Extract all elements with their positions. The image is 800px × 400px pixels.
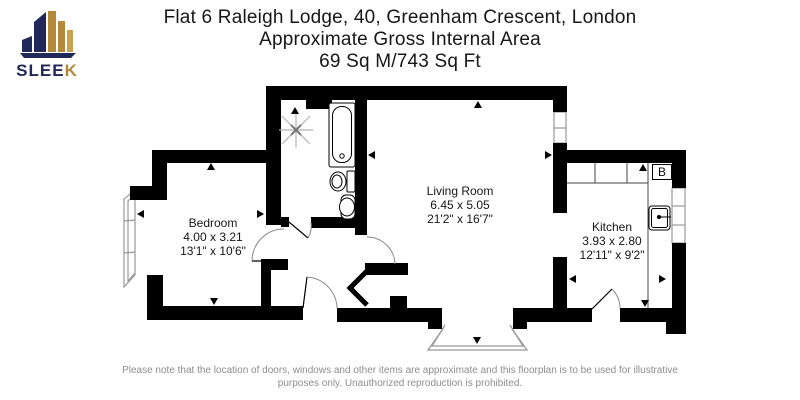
disclaimer-line2: purposes only. Unauthorized reproduction…	[0, 377, 800, 390]
room-imperial-dims: 21'2" x 16'7"	[427, 212, 494, 226]
room-metric-dims: 6.45 x 5.05	[427, 198, 494, 212]
measure-arrow	[545, 151, 552, 159]
measure-arrow	[257, 210, 264, 218]
toilet-icon	[330, 171, 355, 192]
room-name: Bedroom	[180, 216, 246, 230]
walls	[130, 86, 686, 334]
measure-arrow	[474, 101, 482, 108]
floorplan-page: SLEEK Flat 6 Raleigh Lodge, 40, Greenham…	[0, 0, 800, 400]
room-name: Living Room	[427, 184, 494, 198]
measure-arrow	[639, 164, 647, 171]
measure-arrow	[137, 210, 144, 218]
boiler-label: B	[658, 165, 666, 179]
bathtub-icon	[329, 103, 355, 167]
room-imperial-dims: 13'1" x 10'6"	[180, 244, 246, 258]
living-room-label: Living Room 6.45 x 5.05 21'2" x 16'7"	[427, 184, 494, 226]
living-room-door	[367, 237, 395, 264]
measure-arrow	[569, 275, 576, 283]
disclaimer-line1: Please note that the location of doors, …	[0, 364, 800, 377]
bedroom-door	[252, 229, 284, 261]
measure-arrow	[473, 337, 481, 344]
floorplan-drawing	[0, 0, 800, 400]
room-metric-dims: 3.93 x 2.80	[580, 234, 645, 248]
kitchen-door	[592, 289, 620, 309]
cupboard-folding-door	[350, 271, 367, 305]
room-name: Kitchen	[580, 220, 645, 234]
bedroom-label: Bedroom 4.00 x 3.21 13'1" x 10'6"	[180, 216, 246, 258]
kitchen-east-window	[672, 188, 685, 243]
bedroom-bay-window	[124, 190, 135, 287]
measure-arrow	[210, 298, 218, 305]
ceiling-light-icon	[279, 111, 313, 148]
disclaimer: Please note that the location of doors, …	[0, 364, 800, 390]
measure-arrow	[291, 107, 299, 114]
living-room-east-window	[554, 112, 566, 143]
room-metric-dims: 4.00 x 3.21	[180, 230, 246, 244]
bathroom-door	[289, 222, 311, 238]
measure-arrow	[659, 275, 666, 283]
measure-arrow	[207, 163, 215, 170]
boiler-badge: B	[652, 164, 672, 180]
entrance-door	[303, 277, 337, 308]
kitchen-sink-icon	[649, 206, 671, 230]
basin-icon	[340, 195, 356, 219]
measure-arrow	[368, 151, 375, 159]
room-imperial-dims: 12'11" x 9'2"	[580, 248, 645, 262]
kitchen-label: Kitchen 3.93 x 2.80 12'11" x 9'2"	[580, 220, 645, 262]
